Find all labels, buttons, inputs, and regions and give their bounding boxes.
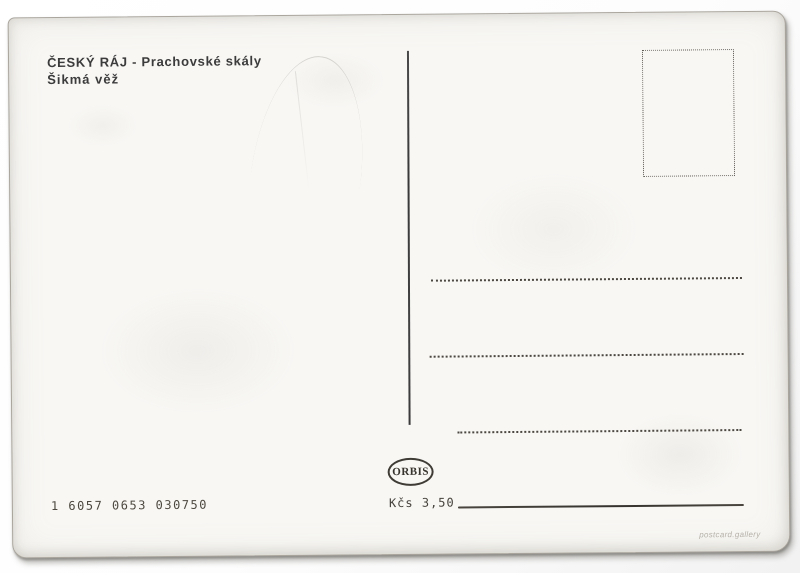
divider-line [407, 51, 411, 425]
scanner-background: ČESKÝ RÁJ - Prachovské skály Šikmá věž O… [0, 0, 800, 573]
address-line-2 [430, 353, 744, 358]
caption-subtitle: Šikmá věž [47, 69, 262, 88]
catalog-number: 1 6057 0653 030750 [51, 498, 208, 513]
orbis-logo-text: ORBIS [392, 466, 429, 478]
watermark-text: postcard.gallery [699, 530, 760, 540]
address-line-1 [431, 277, 742, 282]
postcard-back: ČESKÝ RÁJ - Prachovské skály Šikmá věž O… [8, 11, 791, 559]
paper-crease-secondary [295, 71, 310, 190]
price-label: Kčs 3,50 [389, 496, 455, 511]
signature-line [458, 504, 744, 508]
caption: ČESKÝ RÁJ - Prachovské skály Šikmá věž [47, 52, 262, 88]
address-line-3 [457, 429, 741, 433]
stamp-box [642, 49, 735, 177]
paper-crease [249, 49, 376, 202]
caption-title: ČESKÝ RÁJ - Prachovské skály [47, 52, 262, 71]
orbis-logo: ORBIS [388, 458, 434, 486]
